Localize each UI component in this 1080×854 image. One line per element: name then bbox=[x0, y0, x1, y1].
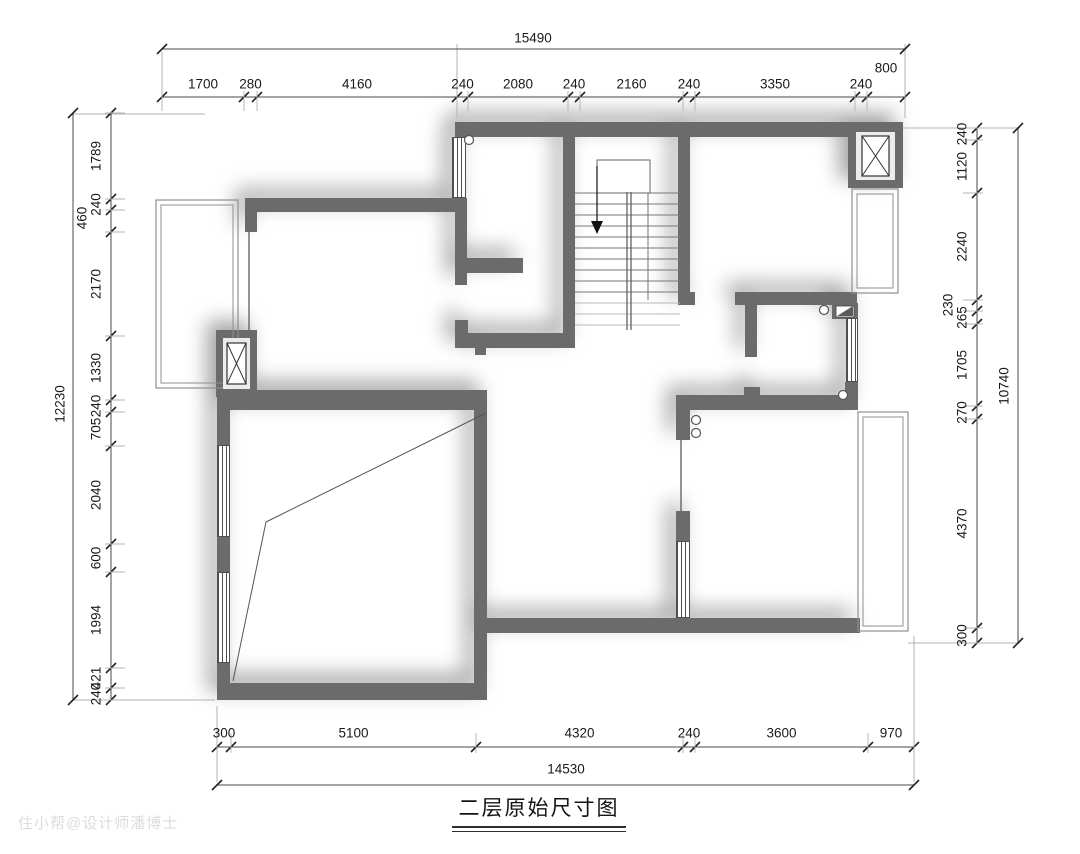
walls-layer bbox=[0, 0, 1080, 854]
wall bbox=[845, 382, 858, 410]
wall bbox=[832, 303, 858, 319]
wall bbox=[676, 395, 857, 410]
wall bbox=[217, 537, 230, 572]
wall bbox=[455, 320, 468, 348]
wall bbox=[678, 292, 695, 305]
window-symbol bbox=[452, 137, 466, 198]
wall bbox=[217, 663, 230, 700]
wall bbox=[455, 333, 573, 348]
wall bbox=[245, 198, 467, 212]
wall bbox=[745, 305, 757, 357]
wall bbox=[245, 198, 257, 232]
window-symbol bbox=[676, 541, 690, 618]
wall bbox=[217, 390, 485, 410]
wall bbox=[474, 618, 860, 633]
wall bbox=[217, 683, 487, 700]
wall bbox=[216, 330, 257, 397]
wall bbox=[744, 387, 760, 396]
wall bbox=[563, 122, 575, 348]
watermark: 住小帮@设计师潘博士 bbox=[18, 812, 178, 833]
wall bbox=[676, 511, 690, 541]
floor-plan-canvas: 1700280416024020802402160240335024080015… bbox=[0, 0, 1080, 854]
wall bbox=[678, 122, 690, 294]
wall bbox=[474, 390, 487, 700]
drawing-title: 二层原始尺寸图 bbox=[450, 792, 628, 822]
window-symbol bbox=[217, 572, 230, 663]
wall bbox=[848, 122, 903, 188]
title-underline-thin bbox=[452, 831, 626, 832]
wall bbox=[217, 390, 230, 445]
window-symbol bbox=[217, 445, 230, 537]
title-underline-thick bbox=[452, 826, 626, 828]
wall bbox=[455, 212, 467, 285]
wall bbox=[455, 258, 523, 273]
window-symbol bbox=[846, 318, 858, 382]
wall bbox=[475, 348, 486, 355]
